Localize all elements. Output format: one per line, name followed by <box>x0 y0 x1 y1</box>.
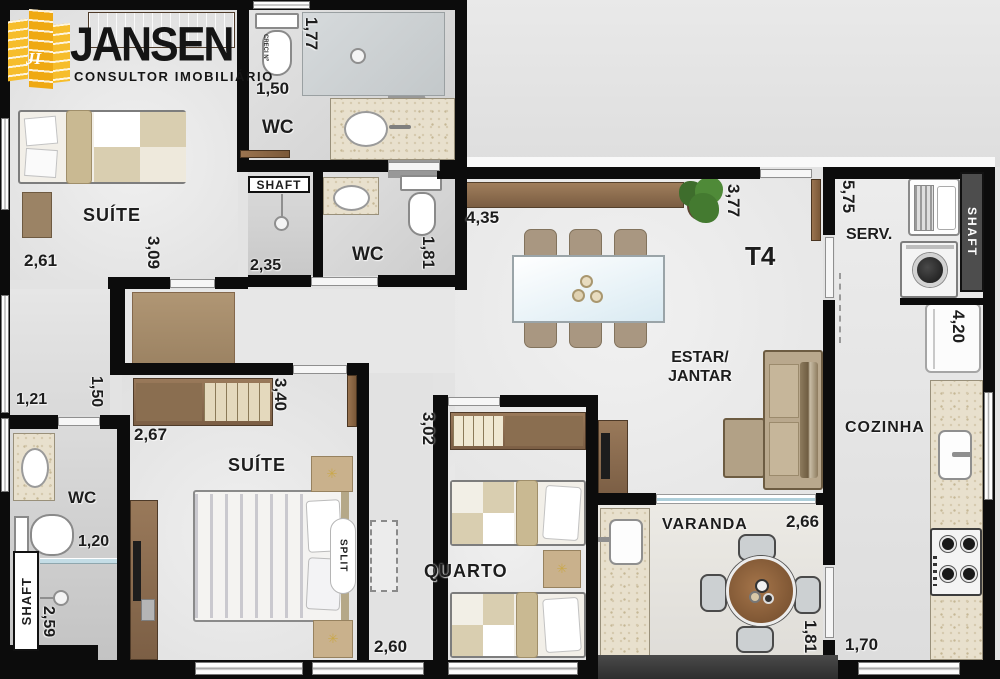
double-bed <box>193 490 347 622</box>
round-table <box>726 556 796 626</box>
bed-duvet <box>195 494 305 618</box>
window <box>1 118 9 210</box>
room-label-wc1: WC <box>262 118 294 137</box>
wall <box>237 160 388 172</box>
dining-chair <box>569 229 602 257</box>
rack-drawer <box>141 599 155 621</box>
dresser <box>22 192 52 238</box>
window <box>858 662 960 675</box>
room-label-estar-line1: ESTAR/ <box>650 348 750 367</box>
washer-door <box>913 253 947 287</box>
measurement-wc3-width: 1,20 <box>78 534 109 550</box>
door-opening <box>170 279 215 288</box>
potted-plant-icon <box>677 177 727 229</box>
room-label-estar-line2: JANTAR <box>650 367 750 386</box>
wall <box>215 277 248 289</box>
shower-glass <box>40 558 117 564</box>
logo-building-icon: JI <box>8 10 70 92</box>
shower-stem <box>40 597 55 599</box>
measurement-quarto-width: 2,60 <box>374 638 407 655</box>
toilet-tank <box>255 13 299 29</box>
toilet <box>398 175 444 237</box>
wall <box>586 395 598 667</box>
door-opening <box>388 162 440 171</box>
tv-panel <box>601 433 610 479</box>
wall <box>357 363 369 667</box>
unit-label: T4 <box>745 243 775 269</box>
cooktop-knobs <box>933 556 937 586</box>
shower-glass <box>302 12 445 96</box>
wall <box>117 415 130 667</box>
dining-chair <box>524 229 557 257</box>
kitchen-counter <box>930 380 983 660</box>
shaft-label-strip: SHAFT <box>248 176 310 193</box>
tv-panel <box>133 541 141 601</box>
burner-icon <box>940 536 956 552</box>
glass-sliding-door <box>656 494 816 504</box>
window <box>984 392 993 500</box>
dining-table <box>512 255 665 323</box>
wall <box>500 395 598 407</box>
wall <box>598 493 656 505</box>
pillow <box>542 597 582 653</box>
measurement-suite1-width: 2,61 <box>24 252 57 269</box>
toilet-tank <box>400 175 442 191</box>
hall-rug <box>132 292 235 364</box>
patio-chair <box>700 574 727 612</box>
wall <box>378 275 467 287</box>
outside-highlight <box>437 157 995 167</box>
washboard <box>914 185 934 231</box>
bathroom-counter <box>323 177 379 215</box>
door-opening <box>825 567 834 638</box>
room-label-estar: ESTAR/ JANTAR <box>650 348 750 386</box>
sofa-seat <box>769 422 799 476</box>
nightstand: ✳ <box>543 550 581 588</box>
room-label-wc2: WC <box>352 245 384 264</box>
door-leaf <box>347 375 357 427</box>
nightstand: ✳ <box>313 620 353 658</box>
wardrobe <box>133 378 273 426</box>
split-unit-badge: SPLIT <box>330 518 356 594</box>
single-bed <box>450 480 586 546</box>
wardrobe <box>450 412 586 450</box>
bed-quilt <box>452 594 514 656</box>
measurement-suite1-depth: 3,09 <box>145 236 162 269</box>
dining-chair <box>614 320 647 348</box>
tv-rack <box>130 500 158 660</box>
nightstand: ✳ <box>311 456 353 492</box>
door-leaf <box>240 150 290 158</box>
burner-icon <box>961 536 977 552</box>
sink-basin <box>344 111 388 147</box>
window <box>195 662 303 675</box>
measurement-corridor-depth: 1,50 <box>88 376 104 407</box>
wall <box>110 363 293 375</box>
measurement-cozinha-upper: 4,20 <box>950 310 967 343</box>
toilet-tank <box>14 516 29 554</box>
room-label-suite2: SUÍTE <box>228 456 286 474</box>
door-opening <box>58 417 100 426</box>
tv-rack <box>598 420 628 494</box>
tray-item <box>749 591 761 603</box>
wall <box>0 0 467 10</box>
faucet-icon <box>952 452 972 457</box>
faucet-icon <box>389 125 411 129</box>
window <box>1 295 9 413</box>
single-bed <box>18 110 186 184</box>
patio-chair <box>736 626 774 653</box>
door-opening <box>293 365 347 374</box>
pillow <box>24 148 58 178</box>
shaft-label-strip: SHAFT <box>13 551 39 651</box>
sofa-chaise <box>723 418 765 478</box>
dining-chair <box>524 320 557 348</box>
door-opening <box>448 397 500 406</box>
tray-item <box>763 593 774 604</box>
room-label-wc3: WC <box>68 489 96 506</box>
wall <box>248 275 311 287</box>
toilet-bowl <box>30 514 74 556</box>
shower-stem <box>281 194 283 218</box>
dining-chair <box>569 320 602 348</box>
pillow <box>24 116 58 147</box>
sofa-seat <box>769 364 799 418</box>
brand-tagline: CONSULTOR IMOBILIÁRIO <box>74 70 274 83</box>
wall <box>823 179 835 235</box>
measurement-varanda-depth: 1,81 <box>802 620 819 653</box>
bed-runner <box>516 480 538 546</box>
washing-machine <box>900 241 958 298</box>
measurement-quarto-depth: 3,02 <box>420 412 437 445</box>
laundry-tank <box>908 178 960 236</box>
shower-head-icon <box>53 590 69 606</box>
measurement-estar-width: 4,35 <box>466 209 499 226</box>
bed-quilt <box>452 482 514 544</box>
wall <box>433 395 448 407</box>
wall <box>313 172 323 282</box>
toilet-bowl <box>408 192 436 236</box>
split-condenser-outline <box>370 520 398 592</box>
wall <box>455 0 467 290</box>
sink-basin <box>21 448 49 488</box>
measurement-estar-depth: 3,77 <box>725 184 742 217</box>
wall <box>816 493 835 505</box>
room-label-cozinha: COZINHA <box>845 420 925 436</box>
candle-icon <box>580 275 593 288</box>
faucet-icon <box>597 537 611 542</box>
window <box>1 418 9 492</box>
burner-icon <box>940 566 956 582</box>
window <box>312 662 424 675</box>
measurement-wc3-depth: 2,59 <box>40 606 56 637</box>
wall <box>110 277 125 372</box>
shower-head-icon <box>274 216 289 231</box>
sideboard <box>462 182 684 208</box>
sofa <box>763 350 823 490</box>
sofa-back-cushion <box>800 362 818 478</box>
split-label: SPLIT <box>338 539 349 572</box>
measurement-corridor-width: 1,21 <box>16 392 47 408</box>
measurement-cozinha-width: 1,70 <box>845 636 878 653</box>
shaft-label-strip: SHAFT <box>960 172 984 292</box>
measurement-suite2-depth: 3,40 <box>272 378 289 411</box>
candle-icon <box>572 289 585 302</box>
room-label-suite1: SUÍTE <box>83 206 141 224</box>
measurement-wc1-depth: 1,77 <box>303 17 320 50</box>
tank-basin <box>937 186 956 230</box>
brand-name: JANSEN <box>70 21 232 69</box>
measurement-wc2-depth: 1,81 <box>420 236 437 269</box>
shaft-label: SHAFT <box>20 577 33 625</box>
window <box>448 662 578 675</box>
bathroom-counter <box>330 98 455 160</box>
outside-area <box>467 0 1000 167</box>
shower-head-icon <box>350 48 366 64</box>
wall <box>823 300 835 565</box>
measurement-serv-depth: 5,75 <box>840 180 857 213</box>
serv-door-swing <box>839 273 841 343</box>
shaft-label: SHAFT <box>257 179 302 191</box>
measurement-shaft1-width: 2,35 <box>250 258 281 274</box>
bed-quilt <box>94 112 186 182</box>
candle-icon <box>590 290 603 303</box>
floor-plan: ✳ ✳ SPLIT ✳ <box>0 0 1000 679</box>
balcony-counter <box>600 508 650 660</box>
measurement-suite2-top: 2,67 <box>134 426 167 443</box>
wall <box>237 0 249 170</box>
pillow <box>542 485 582 541</box>
measurement-varanda-width: 2,66 <box>786 513 819 530</box>
brand-creci: CRECI Nº <box>262 34 268 61</box>
door-leaf <box>811 179 821 241</box>
door-opening <box>825 237 834 298</box>
patio-chair <box>794 576 821 614</box>
sink-basin <box>333 185 370 211</box>
door-opening <box>760 169 812 178</box>
burner-icon <box>961 566 977 582</box>
room-label-serv: SERV. <box>846 227 892 243</box>
single-bed <box>450 592 586 658</box>
room-label-varanda: VARANDA <box>662 517 748 533</box>
shaft-label: SHAFT <box>966 207 978 257</box>
bathroom-counter <box>13 433 55 501</box>
dining-chair <box>614 229 647 257</box>
room-label-quarto: QUARTO <box>424 562 508 580</box>
logo-monogram: JI <box>26 50 41 67</box>
bed-runner <box>66 110 92 184</box>
bed-runner <box>516 592 538 658</box>
wall <box>10 415 58 429</box>
sink-basin <box>609 519 643 565</box>
door-opening <box>311 277 378 286</box>
washer-panel <box>906 245 954 249</box>
balcony-railing-shadow <box>598 655 838 679</box>
wall <box>437 167 760 179</box>
wall <box>900 298 983 305</box>
window <box>253 1 310 9</box>
cooktop <box>930 528 982 596</box>
